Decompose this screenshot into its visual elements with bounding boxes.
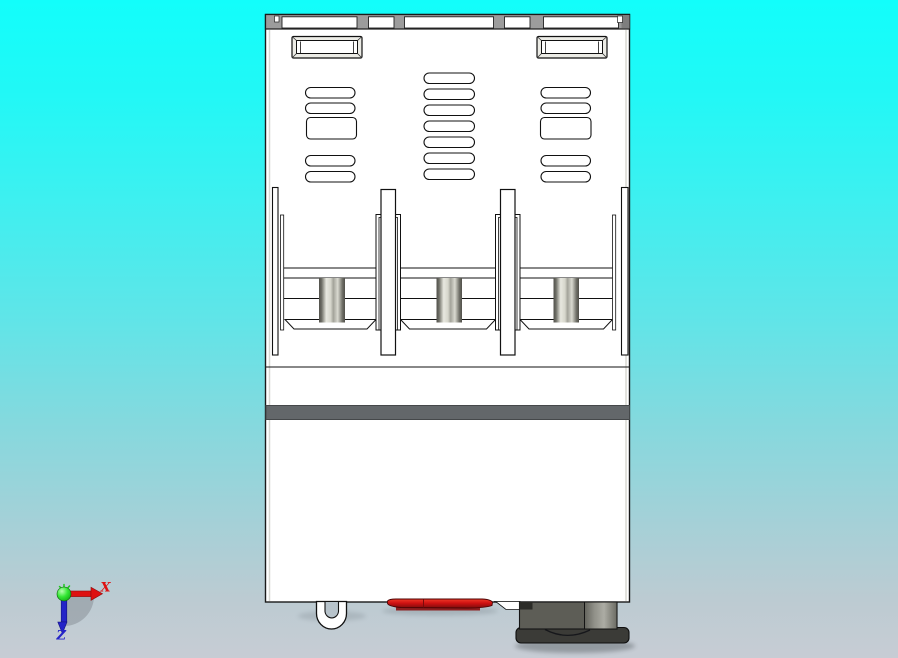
mounting-slot-inner [297,41,358,54]
terminal-post [376,190,401,356]
x-axis-label: X [100,581,112,596]
vent-slot [306,88,356,99]
connector-cylinder [585,602,618,629]
vent-grid-middle [424,73,475,180]
vent-slot [306,172,356,183]
vent-slot [541,172,591,183]
vent-slot [424,89,475,100]
bottom-connector [516,602,629,643]
bottom-features [317,599,630,643]
top-rail-slot [369,17,395,28]
vent-slot [306,103,356,114]
fin-collar [281,215,284,330]
viewport-canvas[interactable]: X Z [0,0,898,658]
post-fin [501,190,516,356]
z-axis-label: Z [56,629,67,644]
red-latch [388,599,493,608]
housing-notch [494,602,520,610]
x-axis-arrow-shaft [69,591,91,597]
top-rail-notch [275,16,280,22]
top-rail-slot [282,17,357,28]
top-rail-slot [405,17,494,28]
model-contactor-side-view[interactable] [266,15,636,654]
vent-slot [424,73,475,84]
vent-window [541,118,592,140]
vent-slot [424,121,475,132]
axis-triad[interactable]: X Z [56,581,112,644]
top-rail-slot [544,17,619,28]
vent-slot [541,88,591,99]
mounting-slot-left [292,37,362,59]
terminal-rod [554,278,580,323]
mounting-slot-right [537,37,607,59]
top-rail-slot [505,17,531,28]
vent-slot [424,105,475,116]
vent-slot [424,169,475,180]
connector-tab [520,602,533,610]
origin-sphere [57,587,71,601]
triad-shadow [64,596,94,626]
vent-window [307,118,357,140]
terminal-rod [437,278,463,323]
fin-collar [613,215,616,330]
mounting-slot-inner [542,41,603,54]
vent-slot [424,153,475,164]
top-rail [266,15,630,30]
separator-fin [622,188,629,356]
din-hook-cavity [325,602,339,618]
post-fin [381,190,396,356]
top-rail-notch [618,16,623,23]
vent-slot [541,156,591,167]
vent-slot [424,137,475,148]
z-axis-arrow-shaft [61,601,67,623]
label-stripe [266,406,630,420]
terminal-rod [319,278,345,323]
vent-slot [306,156,356,167]
cad-viewport[interactable]: X Z [0,0,898,658]
vent-slot [541,103,591,114]
separator-fin [273,188,279,356]
terminal-post [496,190,521,356]
